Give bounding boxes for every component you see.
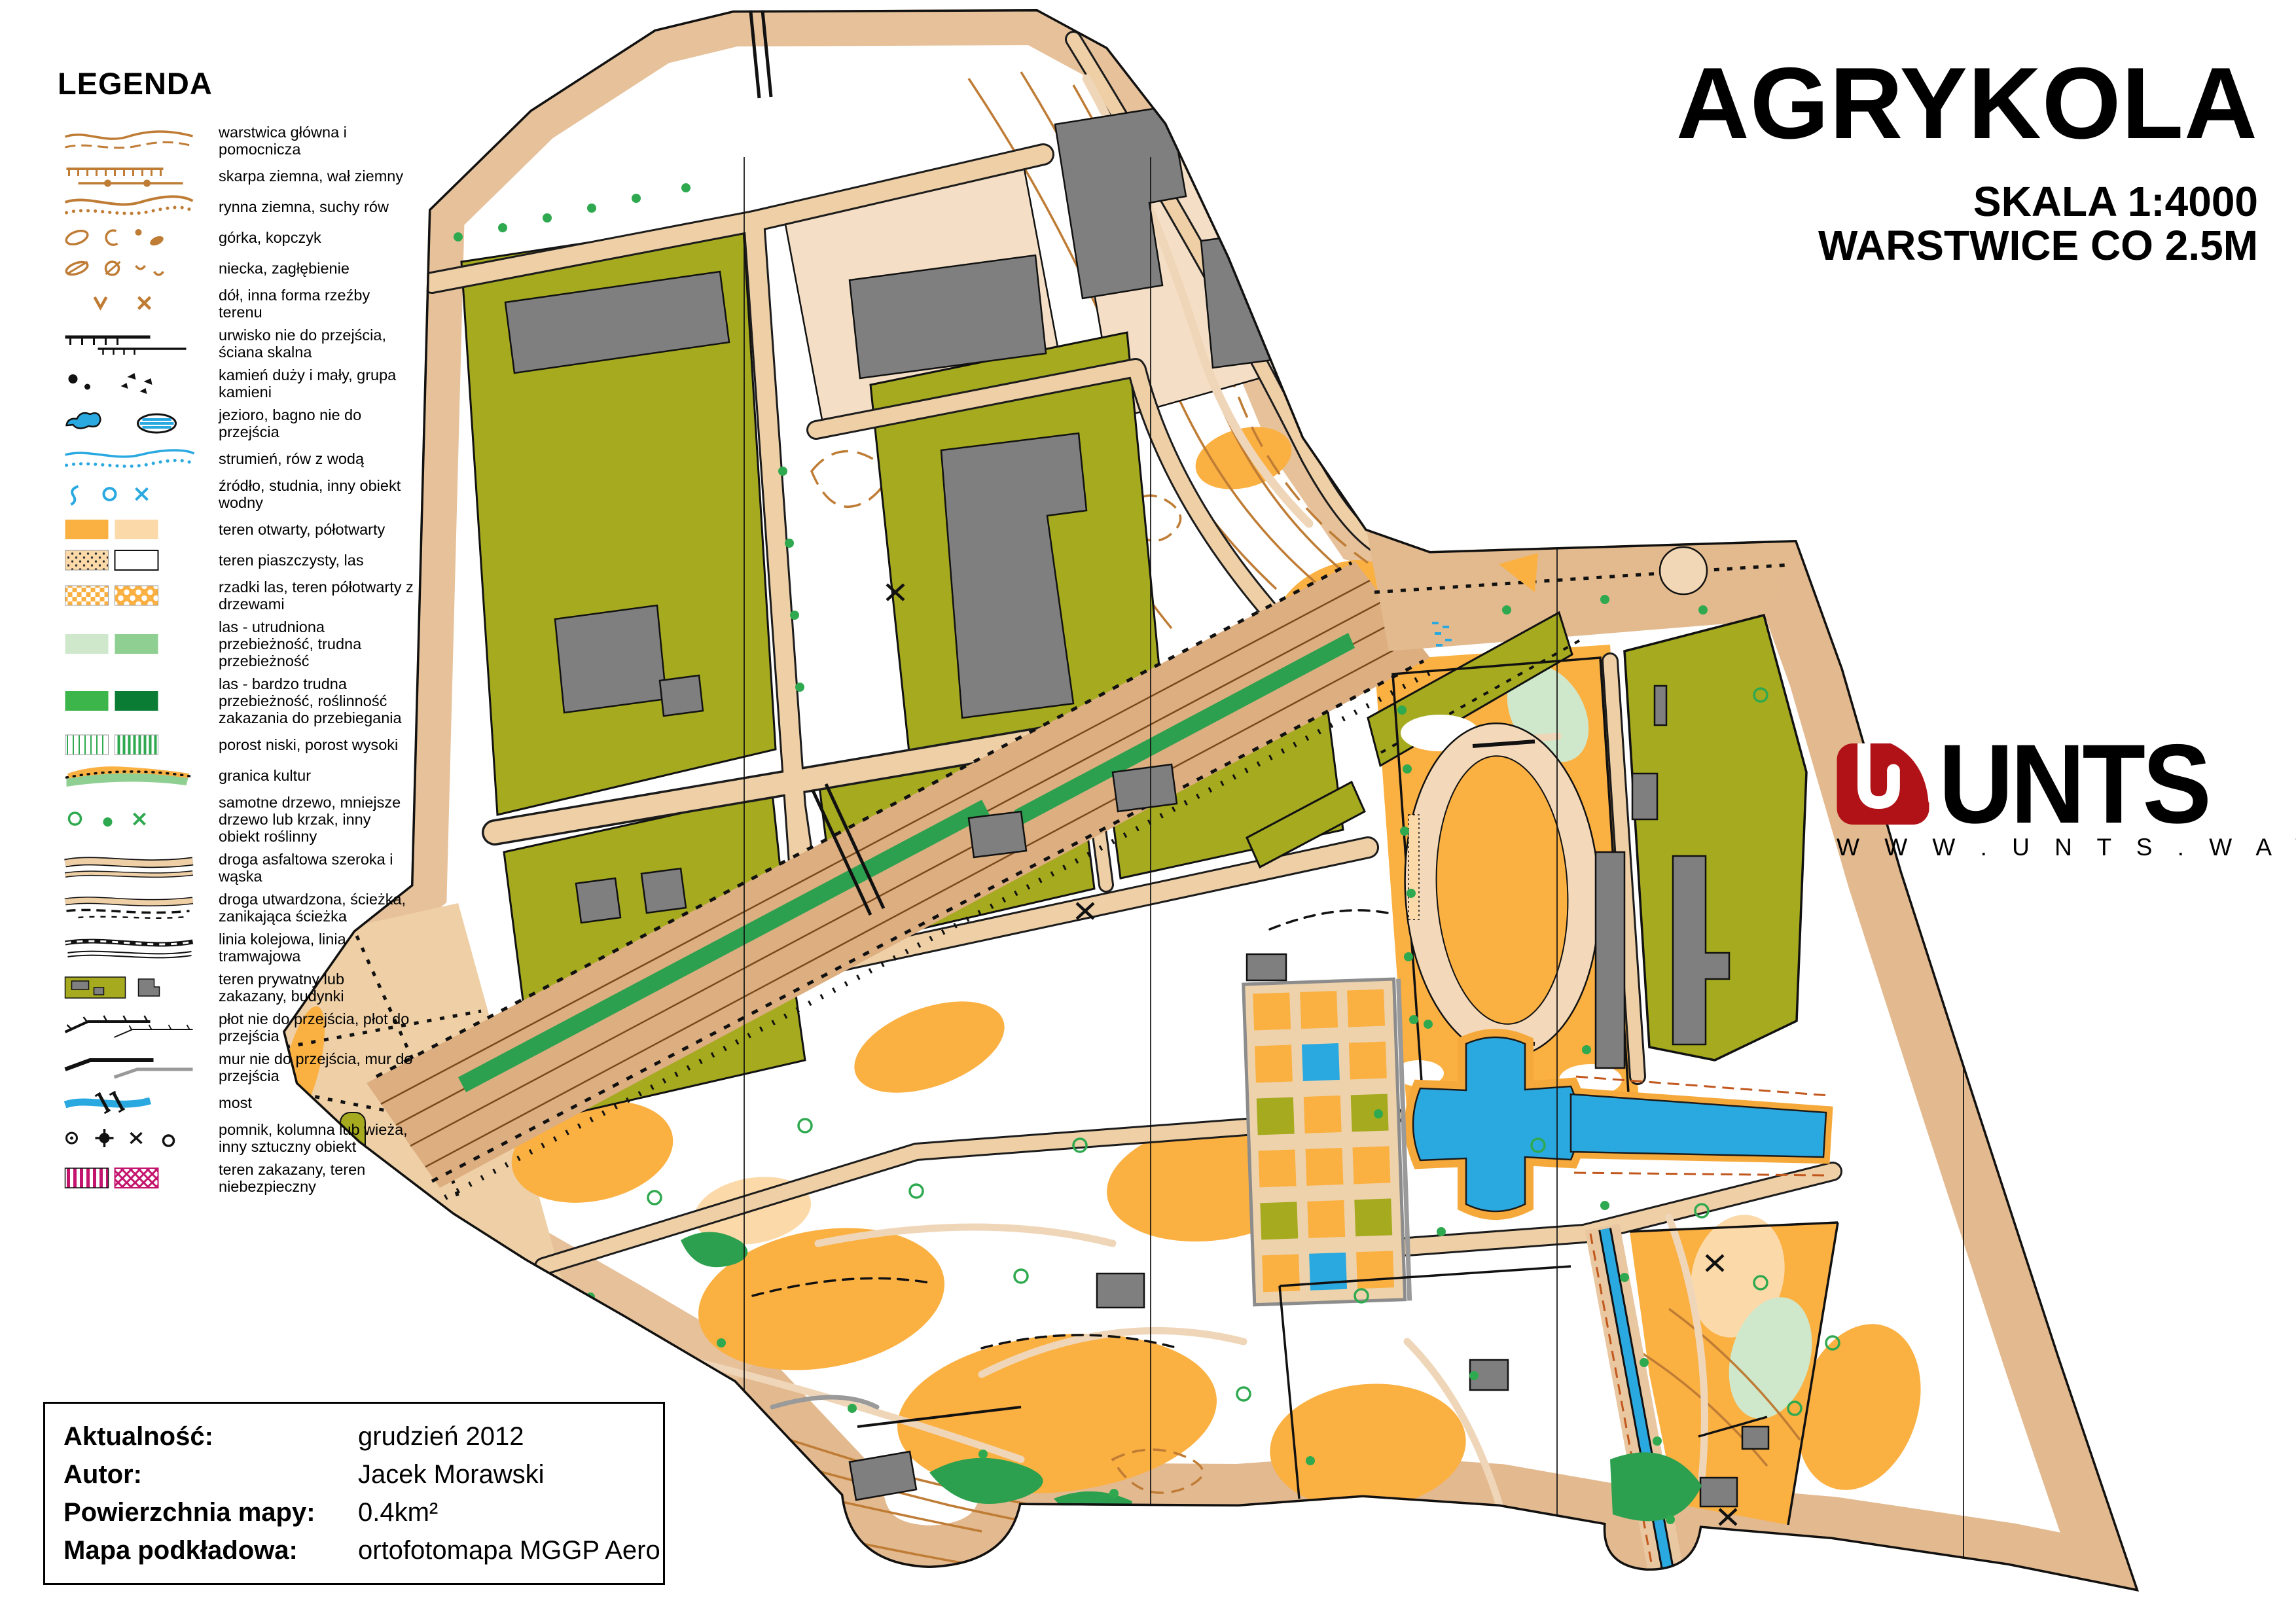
stream-icon	[58, 446, 200, 471]
lake-marsh-icon	[58, 411, 200, 436]
legend-item-private-area: teren prywatny lub zakazany, budynki	[58, 971, 450, 1005]
cultivation-boundary-icon	[58, 763, 200, 788]
forest-walk-icon	[58, 632, 200, 656]
info-row-podklad: Mapa podkładowa: ortofotomapa MGGP Aero	[63, 1531, 663, 1569]
legend-item-label: jezioro, bagno nie do przejścia	[219, 406, 415, 440]
info-label: Aktualność:	[63, 1418, 358, 1455]
legend-item-label: górka, kopczyk	[219, 229, 415, 246]
legend-item-label: las - bardzo trudna przebieżność, roślin…	[219, 675, 415, 726]
title-block: AGRYKOLA SKALA 1:4000 WARSTWICE CO 2.5M	[1676, 52, 2258, 268]
rough-open-icon	[58, 583, 200, 608]
legend-item-paved-road: droga asfaltowa szeroka i wąska	[58, 851, 450, 885]
info-row-autor: Autor: Jacek Morawski	[63, 1455, 663, 1493]
legend-item-label: dół, inna forma rzeźby terenu	[219, 287, 415, 321]
bridge-icon	[58, 1090, 200, 1115]
legend-item-label: teren piaszczysty, las	[219, 552, 415, 569]
unts-logo-text: UNTS	[1939, 743, 2208, 825]
legend-item-label: skarpa ziemna, wał ziemny	[219, 168, 415, 185]
legend-item-spring: źródło, studnia, inny obiekt wodny	[58, 477, 450, 511]
info-value: grudzień 2012	[358, 1418, 524, 1455]
info-value: 0.4km²	[358, 1493, 438, 1531]
unts-logo: UNTS W W W . U N T S . W A W . P L	[1837, 743, 2282, 861]
legend-item-label: warstwica główna i pomocnicza	[219, 124, 415, 158]
legend-item-undergrowth: porost niski, porost wysoki	[58, 732, 450, 757]
wall-icon	[58, 1055, 200, 1080]
legend-item-label: porost niski, porost wysoki	[219, 736, 415, 753]
legend-item-sand-forest: teren piaszczysty, las	[58, 548, 450, 573]
legend-item-monument: pomnik, kolumna lub wieża, inny sztuczny…	[58, 1121, 450, 1155]
legend-item-wall: mur nie do przejścia, mur do przejścia	[58, 1050, 450, 1084]
unts-logo-icon	[1837, 743, 1929, 825]
legend-item-label: droga asfaltowa szeroka i wąska	[219, 851, 415, 885]
legend-item-label: las - utrudniona przebieżność, trudna pr…	[219, 618, 415, 669]
garden-parterre	[1244, 979, 1410, 1306]
info-label: Powierzchnia mapy:	[63, 1493, 358, 1531]
legend-item-forbidden-area: teren zakazany, teren niebezpieczny	[58, 1161, 450, 1195]
map-info-box: Aktualność: grudzień 2012 Autor: Jacek M…	[43, 1402, 665, 1585]
legend-item-contours: warstwica główna i pomocnicza	[58, 124, 450, 158]
info-value: ortofotomapa MGGP Aero	[358, 1531, 660, 1569]
spring-icon	[58, 482, 200, 507]
footpath-icon	[58, 895, 200, 920]
legend-item-depression: niecka, zagłębienie	[58, 256, 450, 281]
legend-item-label: droga utwardzona, ścieżka, zanikająca śc…	[219, 891, 415, 925]
stones-icon	[58, 371, 200, 396]
map-contour-interval: WARSTWICE CO 2.5M	[1676, 224, 2258, 268]
pit-icon	[58, 291, 200, 316]
legend-item-label: teren zakazany, teren niebezpieczny	[219, 1161, 415, 1195]
legend-item-stones: kamień duży i mały, grupa kamieni	[58, 366, 450, 401]
legend-item-label: granica kultur	[219, 767, 415, 784]
legend-panel: LEGENDA warstwica główna i pomocniczaska…	[58, 65, 450, 1201]
legend-item-stream: strumień, rów z wodą	[58, 446, 450, 471]
contours-icon	[58, 128, 200, 153]
legend-item-open-land: teren otwarty, półotwarty	[58, 517, 450, 542]
info-value: Jacek Morawski	[358, 1455, 545, 1493]
map-title: AGRYKOLA	[1676, 52, 2258, 154]
forest-fight-icon	[58, 688, 200, 713]
legend-item-label: mur nie do przejścia, mur do przejścia	[219, 1050, 415, 1084]
fence-icon	[58, 1015, 200, 1040]
legend-item-label: kamień duży i mały, grupa kamieni	[219, 366, 415, 401]
legend-item-label: rynna ziemna, suchy rów	[219, 198, 415, 215]
depression-icon	[58, 256, 200, 281]
legend-item-label: samotne drzewo, mniejsze drzewo lub krza…	[219, 794, 415, 845]
dry-ditch-icon	[58, 194, 200, 219]
cliff-icon	[58, 331, 200, 356]
legend-item-label: rzadki las, teren półotwarty z drzewami	[219, 579, 415, 613]
legend-item-lake-marsh: jezioro, bagno nie do przejścia	[58, 406, 450, 440]
legend-item-dry-ditch: rynna ziemna, suchy rów	[58, 194, 450, 219]
earth-bank-icon	[58, 164, 200, 188]
legend-item-label: strumień, rów z wodą	[219, 450, 415, 467]
info-label: Autor:	[63, 1455, 358, 1493]
legend-item-cliff: urwisko nie do przejścia, ściana skalna	[58, 327, 450, 361]
legend-item-tree: samotne drzewo, mniejsze drzewo lub krza…	[58, 794, 450, 845]
legend-item-label: płot nie do przejścia, płot do przejścia	[219, 1010, 415, 1044]
info-label: Mapa podkładowa:	[63, 1531, 358, 1569]
legend-title: LEGENDA	[58, 65, 450, 101]
legend-list: warstwica główna i pomocniczaskarpa ziem…	[58, 124, 450, 1195]
legend-item-cultivation-boundary: granica kultur	[58, 763, 450, 788]
legend-item-label: źródło, studnia, inny obiekt wodny	[219, 477, 415, 511]
legend-item-label: urwisko nie do przejścia, ściana skalna	[219, 327, 415, 361]
legend-item-label: niecka, zagłębienie	[219, 260, 415, 277]
info-row-aktualnosc: Aktualność: grudzień 2012	[63, 1418, 663, 1455]
legend-item-label: pomnik, kolumna lub wieża, inny sztuczny…	[219, 1121, 415, 1155]
legend-item-label: linia kolejowa, linia tramwajowa	[219, 931, 415, 965]
legend-item-label: teren otwarty, półotwarty	[219, 521, 415, 538]
legend-item-bridge: most	[58, 1090, 450, 1115]
legend-item-fence: płot nie do przejścia, płot do przejścia	[58, 1010, 450, 1044]
olive-area-east	[1624, 615, 1806, 1060]
legend-item-earth-bank: skarpa ziemna, wał ziemny	[58, 164, 450, 188]
knoll-icon	[58, 225, 200, 250]
legend-item-forest-fight: las - bardzo trudna przebieżność, roślin…	[58, 675, 450, 726]
info-row-powierzchnia: Powierzchnia mapy: 0.4km²	[63, 1493, 663, 1531]
sand-forest-icon	[58, 548, 200, 573]
legend-item-knoll: górka, kopczyk	[58, 225, 450, 250]
legend-item-rough-open: rzadki las, teren półotwarty z drzewami	[58, 579, 450, 613]
legend-item-pit: dół, inna forma rzeźby terenu	[58, 287, 450, 321]
railway-icon	[58, 935, 200, 960]
paved-road-icon	[58, 855, 200, 880]
legend-item-label: most	[219, 1094, 415, 1111]
map-scale: SKALA 1:4000	[1676, 180, 2258, 224]
legend-item-label: teren prywatny lub zakazany, budynki	[219, 971, 415, 1005]
legend-item-forest-walk: las - utrudniona przebieżność, trudna pr…	[58, 618, 450, 669]
undergrowth-icon	[58, 732, 200, 757]
legend-item-footpath: droga utwardzona, ścieżka, zanikająca śc…	[58, 891, 450, 925]
monument-icon	[58, 1126, 200, 1150]
open-land-icon	[58, 517, 200, 542]
legend-item-railway: linia kolejowa, linia tramwajowa	[58, 931, 450, 965]
private-area-icon	[58, 975, 200, 1000]
tree-icon	[58, 807, 200, 832]
forbidden-area-icon	[58, 1166, 200, 1190]
